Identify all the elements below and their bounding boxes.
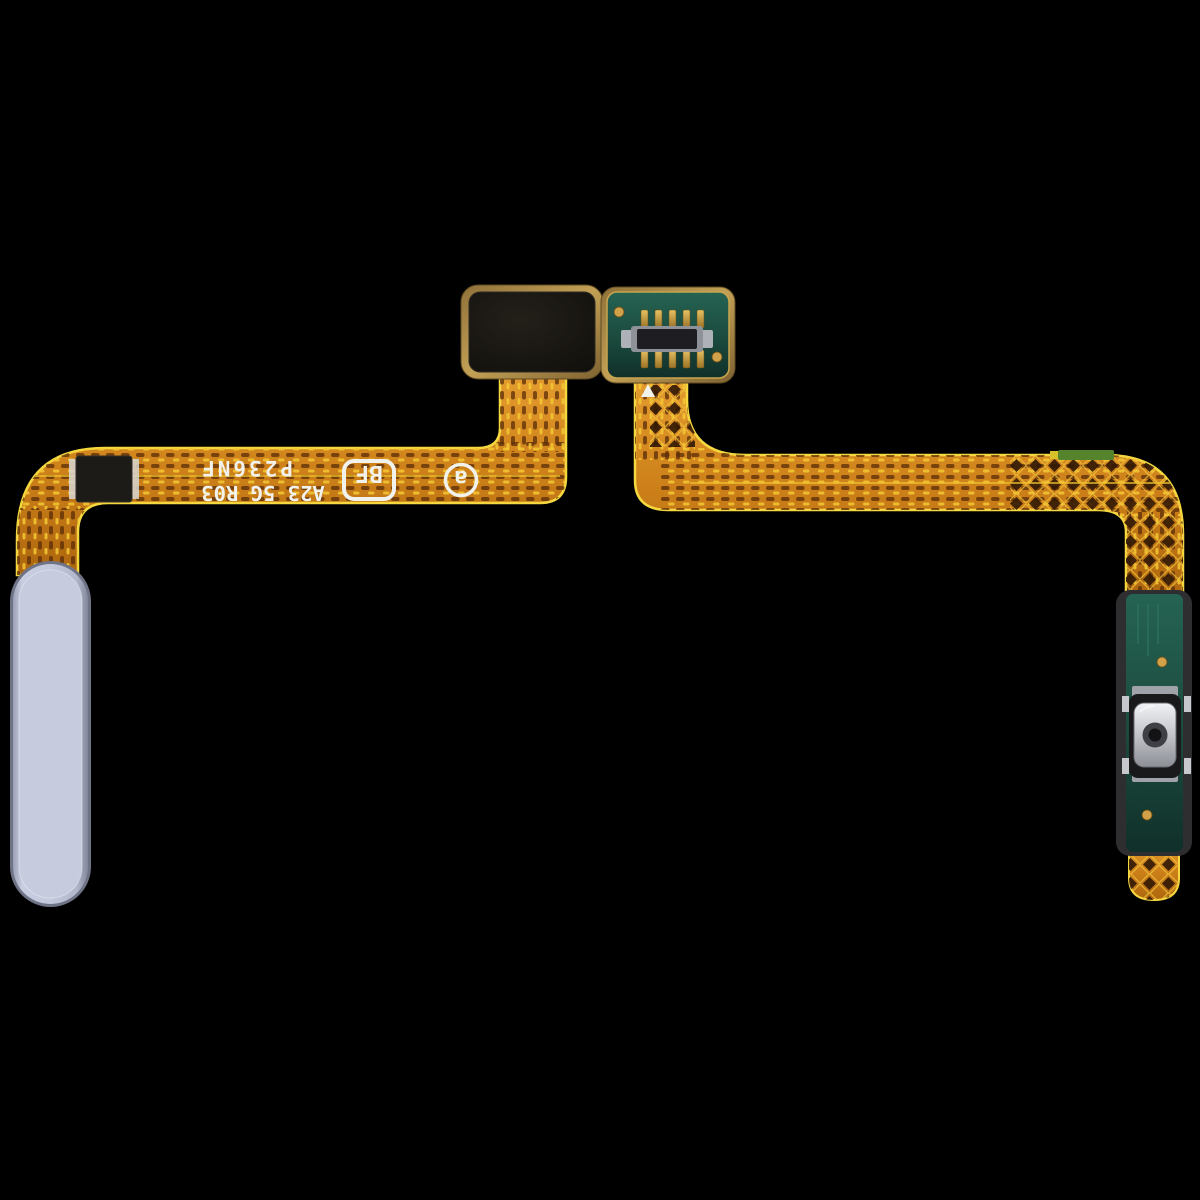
- marking-line2: P236NF: [199, 456, 293, 480]
- chip-solder-pad-left: [69, 459, 76, 499]
- switch-tab: [1122, 696, 1129, 712]
- dome-switch-button: [1129, 686, 1181, 782]
- green-patch: [1058, 450, 1114, 460]
- connector-socket: [637, 329, 697, 349]
- gold-test-pad: [712, 352, 722, 362]
- pad-black-surface: [469, 292, 595, 372]
- connector-pcb: [601, 287, 735, 383]
- photo-background: [0, 0, 1200, 1200]
- power-button-cap: [10, 561, 91, 907]
- switch-tab: [1122, 758, 1129, 774]
- gold-test-pad: [1142, 810, 1152, 820]
- a-stamp-text: a: [454, 465, 467, 490]
- yellow-patch: [1050, 451, 1059, 459]
- black-foam-pad: [461, 285, 603, 379]
- dome-switch-pcb: [1116, 590, 1192, 900]
- switch-tab: [1184, 758, 1191, 774]
- button-face: [19, 570, 82, 898]
- gold-test-pad: [614, 307, 624, 317]
- flex-cable-photo: A23 5G R03 P236NF BF a: [0, 0, 1200, 1200]
- switch-tab: [1184, 696, 1191, 712]
- gold-test-pad: [1157, 657, 1167, 667]
- smd-chip: [69, 456, 139, 502]
- chip-solder-pad-right: [132, 459, 139, 499]
- product-photo-canvas: A23 5G R03 P236NF BF a: [0, 0, 1200, 1200]
- bf-stamp-text: BF: [355, 460, 383, 486]
- marking-line1: A23 5G R03: [201, 481, 324, 505]
- switch-actuator-center: [1149, 729, 1162, 742]
- chip-body: [76, 456, 132, 502]
